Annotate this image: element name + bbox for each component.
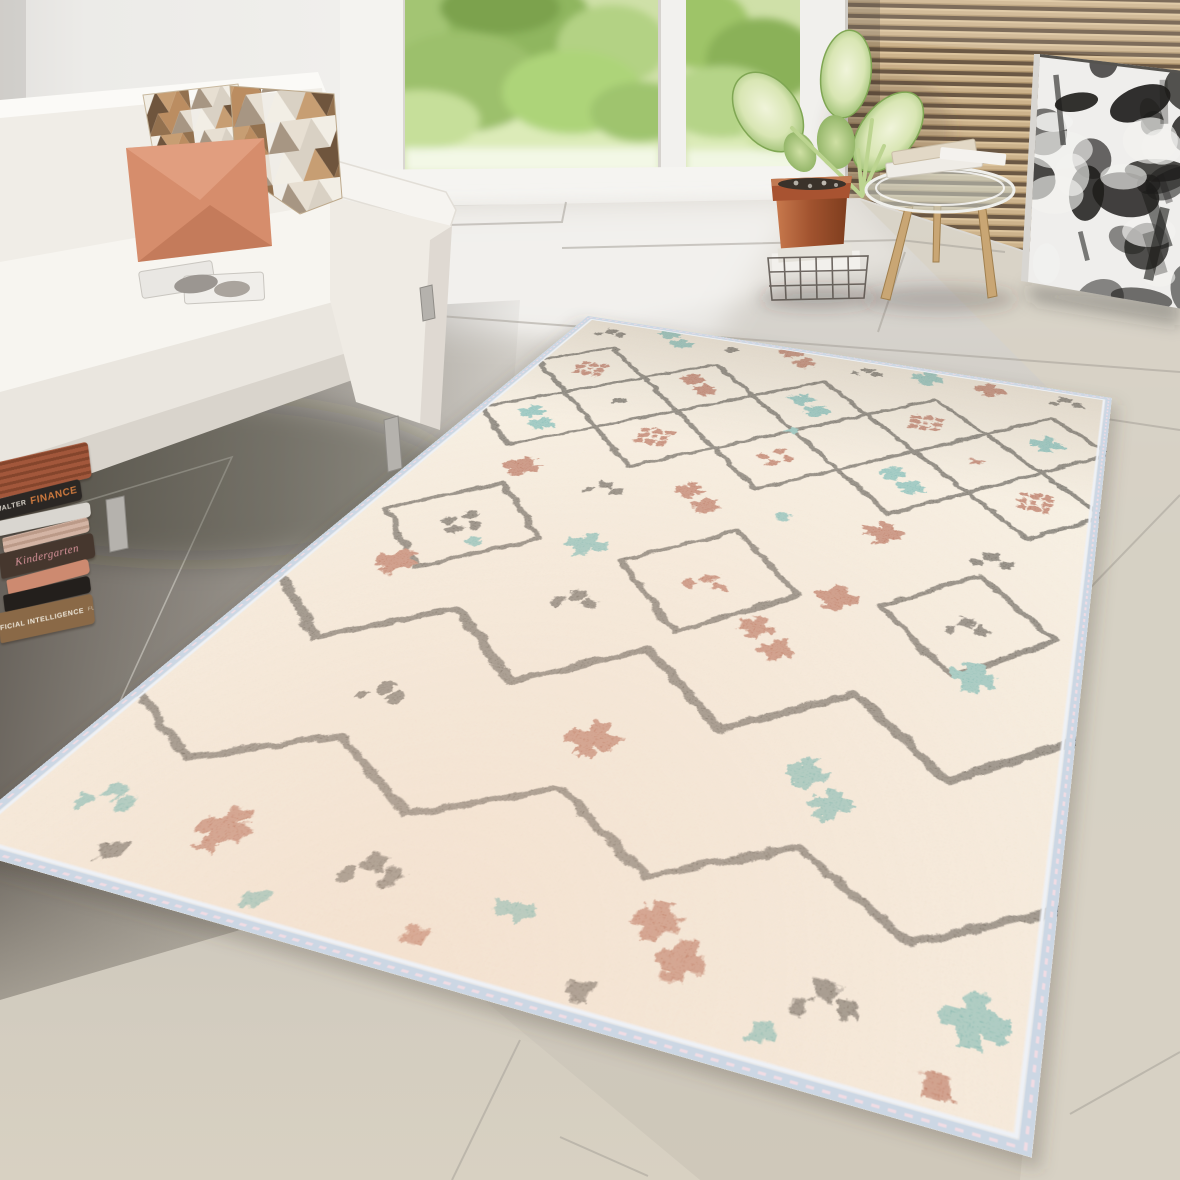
living-room-scene: WALTERFINANCEKindergartenARTIFICIAL INTE… <box>0 0 1180 1180</box>
ai-book-title: ARTIFICIAL INTELLIGENCE <box>0 607 84 636</box>
finance-book-title: FINANCE <box>30 485 78 507</box>
garden-foliage <box>360 0 690 173</box>
ai-book-title: FUTURE <box>88 602 96 612</box>
window-mullion <box>660 0 686 176</box>
salmon-pillow <box>126 138 272 262</box>
book-stack: WALTERFINANCEKindergartenARTIFICIAL INTE… <box>0 449 120 695</box>
finance-book-title: WALTER <box>0 499 27 514</box>
